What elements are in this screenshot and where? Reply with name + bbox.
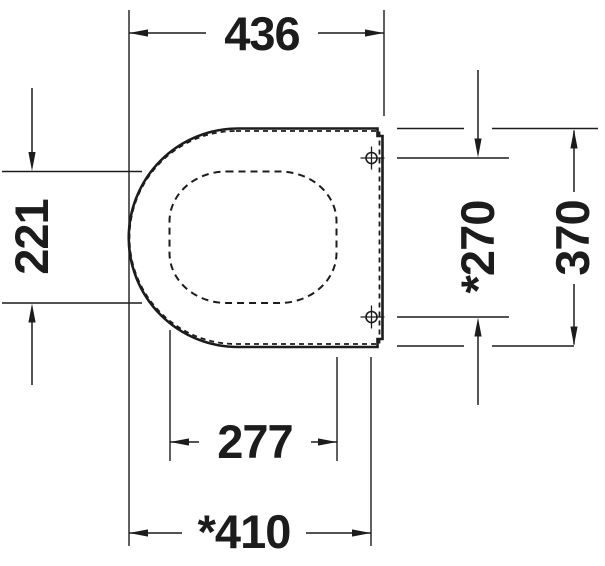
seat-hole-outline xyxy=(170,172,337,304)
technical-drawing: 436 221 *270 370 277 *410 xyxy=(0,0,605,566)
extension-lines xyxy=(2,10,598,546)
dimension-label-hole-length: 277 xyxy=(199,421,311,462)
dimension-label-seat-length: *410 xyxy=(182,511,306,552)
dimension-label-overall-length: 436 xyxy=(206,13,318,54)
hinge-center-mark-bottom xyxy=(361,306,385,329)
seat-cover-outline xyxy=(129,129,383,348)
dimension-label-hinge-spacing: *270 xyxy=(456,188,498,306)
dimension-label-overall-width: 370 xyxy=(551,192,593,284)
dimension-label-hole-width: 221 xyxy=(10,191,52,283)
hinge-center-mark-top xyxy=(361,147,385,170)
seat-ring-outline xyxy=(130,131,380,344)
drawing-canvas xyxy=(0,0,605,566)
